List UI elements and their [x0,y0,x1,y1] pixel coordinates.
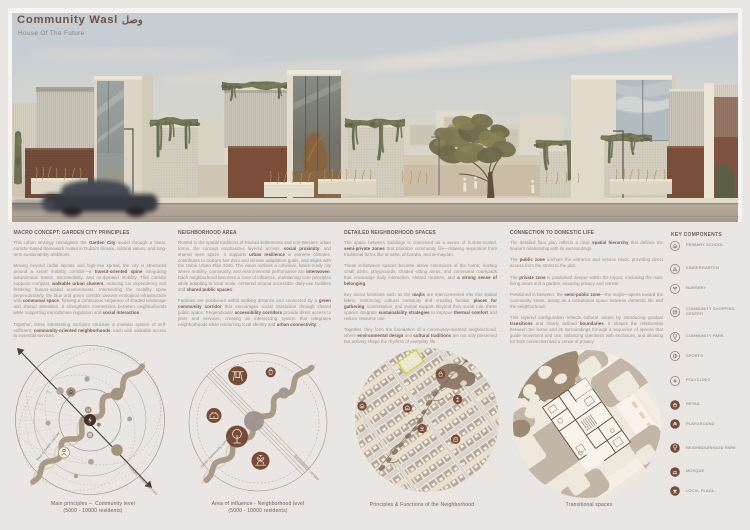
svg-text:Accessibility corridor: Accessibility corridor [293,454,320,482]
svg-text:300 m: 300 m [37,403,43,406]
svg-text:Primary mobility corridor: Primary mobility corridor [127,465,159,497]
svg-text:150 m: 150 m [46,391,52,395]
